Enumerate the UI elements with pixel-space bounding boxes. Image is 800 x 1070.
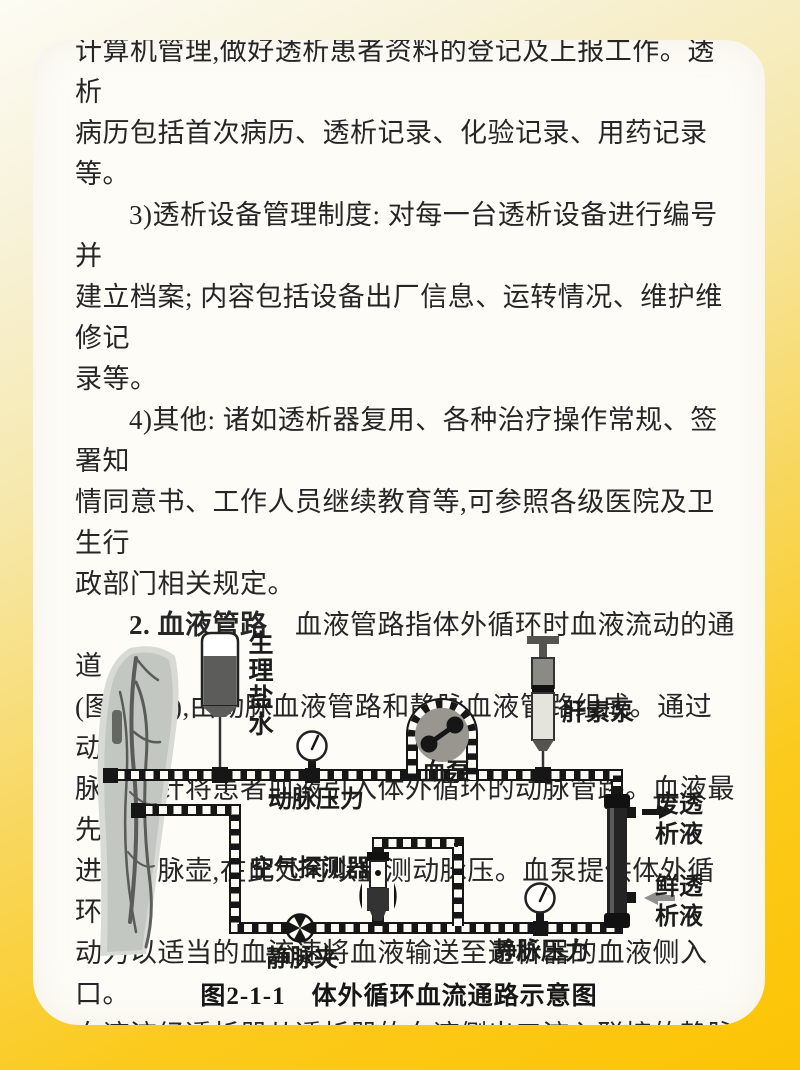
- dialyzer: [604, 786, 636, 928]
- blood-pump-label: 血泵: [422, 758, 470, 788]
- book-photo: { "page": { "paragraphs": [ { "text": "计…: [0, 0, 800, 1070]
- venous-pressure-label: 静脉压力: [493, 937, 589, 967]
- venous-pressure-gauge: [526, 884, 555, 923]
- heparin-pump-label: 肝素泵: [562, 698, 634, 728]
- fresh-dialysate-label: 鲜透析液: [655, 872, 709, 932]
- paragraph-computer-management: 计算机管理,做好透析患者资料的登记及上报工作。透析 病历包括首次病历、透析记录、…: [75, 40, 737, 195]
- air-sensor-right: [394, 883, 397, 909]
- saline-bag: [202, 633, 238, 770]
- figure-caption: 图2-1-1 体外循环血流通路示意图: [33, 976, 765, 1012]
- arterial-pressure-label: 动脉压力: [268, 785, 364, 815]
- arm-image: [98, 646, 179, 956]
- heparin-syringe: [527, 636, 559, 770]
- venous-clamp-graphic: [287, 915, 314, 942]
- venous-clamp-label: 静脉夹: [266, 944, 338, 974]
- air-detector-label: 空气探测器: [250, 854, 370, 884]
- air-detector-loop-tube: [378, 843, 458, 926]
- blood-pump-graphic: [415, 708, 469, 762]
- circuit-diagram: 生理盐水 动脉压力 血泵 肝素泵 废透析液 鲜透析液 空气探测器 静脉夹 静脉压…: [50, 622, 765, 982]
- saline-label: 生理盐水: [243, 630, 273, 738]
- air-sensor-left: [359, 883, 362, 909]
- book-page: 计算机管理,做好透析患者资料的登记及上报工作。透析 病历包括首次病历、透析记录、…: [33, 40, 765, 1025]
- paragraph-other-rules: 4)其他: 诸如透析器复用、各种治疗操作常规、签署知 情同意书、工作人员继续教育…: [75, 400, 737, 605]
- paragraph-equipment-rules: 3)透析设备管理制度: 对每一台透析设备进行编号并 建立档案; 内容包括设备出厂…: [75, 195, 737, 400]
- waste-dialysate-label: 废透析液: [655, 790, 709, 850]
- arterial-pressure-gauge: [298, 732, 327, 771]
